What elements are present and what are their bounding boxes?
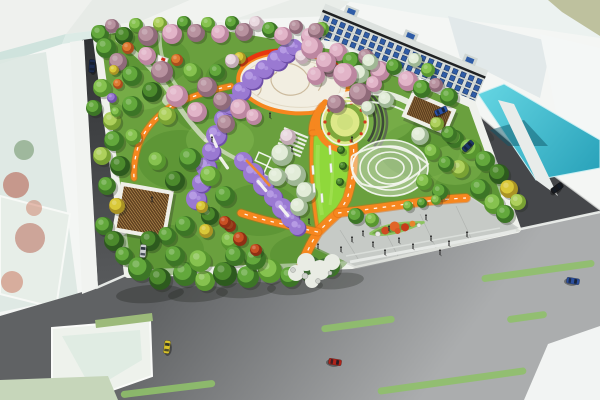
- bench: [313, 183, 316, 192]
- bench: [330, 163, 333, 172]
- scene-canvas: [0, 0, 600, 400]
- bench: [329, 145, 332, 154]
- bench: [321, 193, 324, 202]
- park-aerial-render: [0, 0, 600, 400]
- bench: [312, 165, 315, 174]
- grass-corner: [0, 376, 118, 400]
